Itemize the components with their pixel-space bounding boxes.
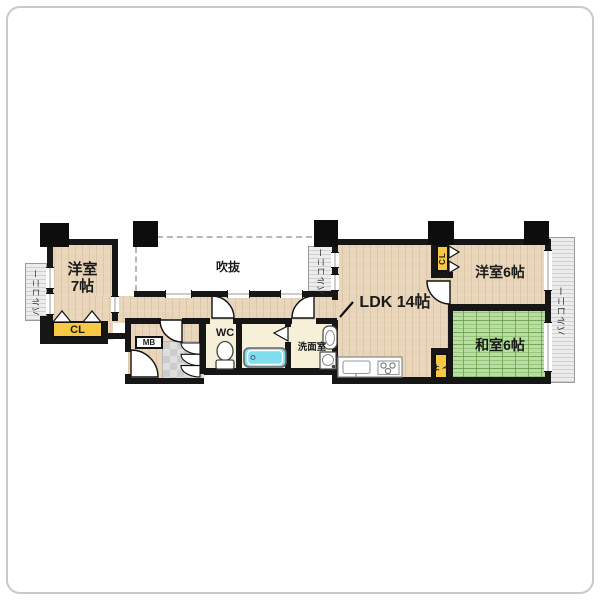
washroom-door-arc (292, 296, 314, 318)
toilet-icon (216, 342, 234, 370)
western7-name: 洋室 (67, 261, 97, 278)
void-label: 吹抜 (216, 258, 240, 275)
western7-size: 7帖 (71, 278, 94, 295)
bathtub-icon (244, 348, 286, 367)
balcony-middle-label: バルコニー (315, 241, 327, 301)
balcony-left-label: バルコニー (30, 262, 42, 322)
kitchen-counter-icon (338, 357, 402, 377)
hallway-door-arc (160, 320, 182, 342)
room-label-void: 吹抜 (200, 258, 256, 274)
wc-door-arc (212, 296, 234, 318)
room-label-wc: WC (212, 326, 238, 340)
room-label-western6: 洋室6帖 (457, 262, 543, 282)
balcony-left-text: バルコニー (30, 268, 42, 315)
washroom-label: 洗面室 (298, 339, 327, 353)
wc-label: WC (216, 327, 234, 339)
room-label-ldk: LDK 14帖 (345, 289, 445, 311)
fixtures-layer (0, 0, 600, 600)
balcony-right-text: バルコニー (555, 286, 568, 336)
japanese6-label: 和室6帖 (475, 335, 525, 355)
closet-left-door-triangle (83, 311, 101, 322)
closet-right-door-triangle (449, 246, 459, 258)
shoe-cabinet-doors (181, 343, 200, 377)
room-label-western7: 洋室 7帖 (55, 258, 110, 298)
balcony-right-label: バルコニー (555, 281, 568, 341)
room-label-washroom: 洗面室 (291, 339, 333, 352)
washing-machine-icon (320, 352, 336, 369)
floor-plan-canvas: CL CL 押入 MB (0, 0, 600, 600)
ldk-label: LDK 14帖 (359, 288, 430, 312)
bath-door-triangle (274, 326, 288, 341)
closet-left-door-triangle (53, 311, 71, 322)
entry-door-arc (131, 350, 158, 377)
room-label-japanese6: 和室6帖 (459, 335, 541, 355)
western6-label: 洋室6帖 (475, 262, 525, 282)
balcony-middle-text: バルコニー (315, 247, 327, 294)
